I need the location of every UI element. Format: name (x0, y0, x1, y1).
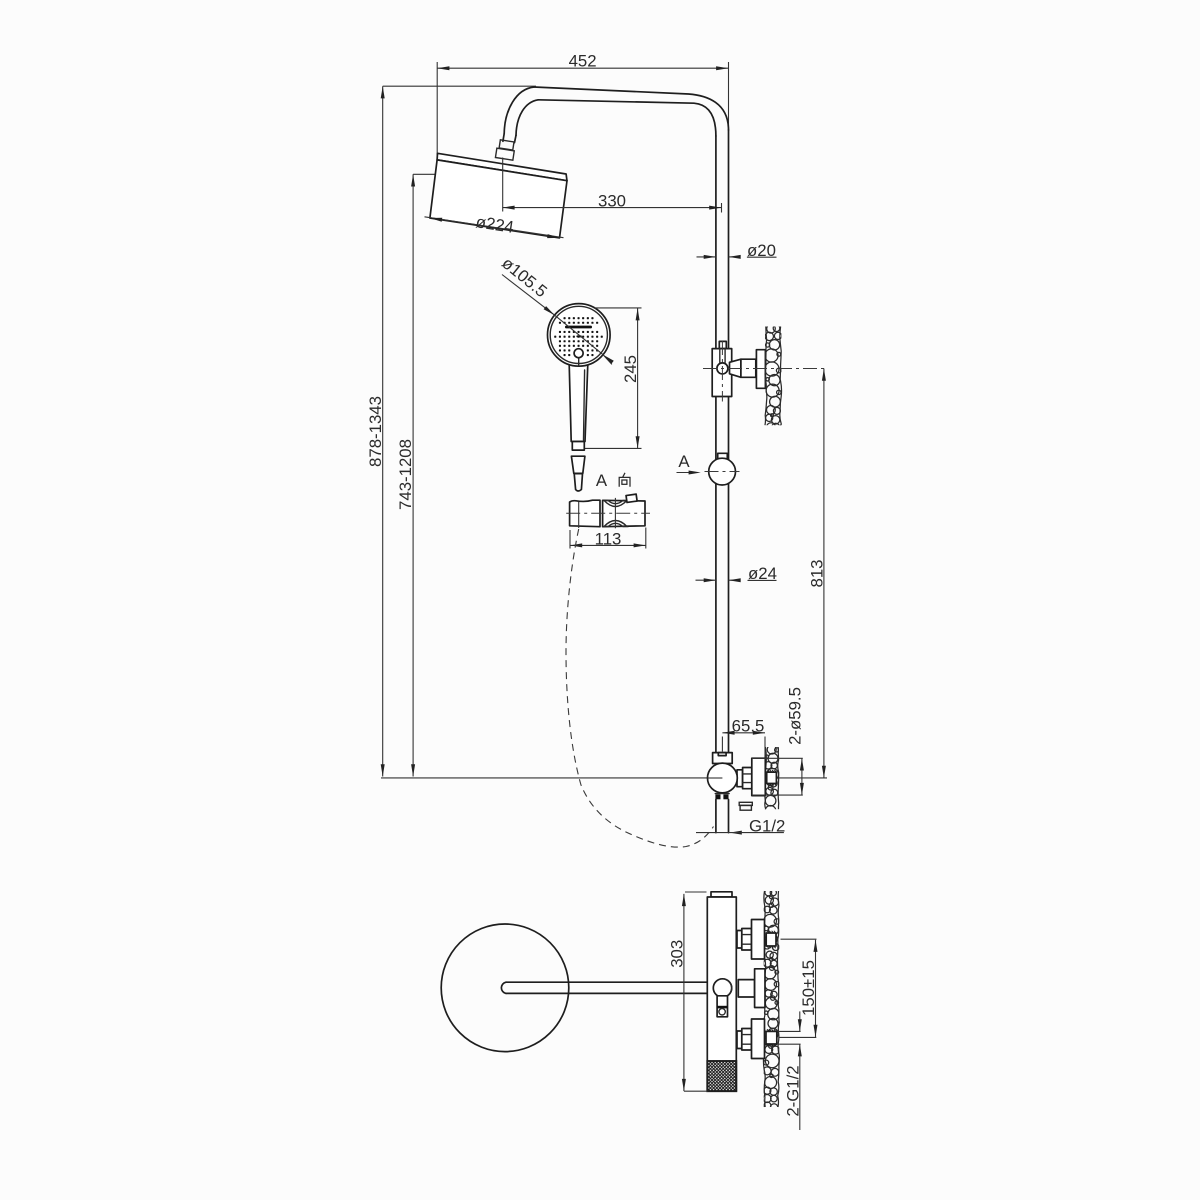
svg-text:743-1208: 743-1208 (396, 439, 415, 510)
svg-text:303: 303 (668, 940, 687, 968)
svg-text:65.5: 65.5 (732, 717, 765, 736)
svg-text:813: 813 (808, 560, 827, 588)
svg-text:A: A (678, 452, 690, 471)
svg-text:452: 452 (569, 51, 597, 70)
svg-text:113: 113 (595, 529, 622, 548)
svg-text:878-1343: 878-1343 (366, 396, 385, 467)
svg-text:ø20: ø20 (747, 241, 776, 260)
svg-text:330: 330 (598, 191, 626, 210)
svg-text:G1/2: G1/2 (749, 817, 785, 836)
svg-text:ø24: ø24 (748, 564, 777, 583)
svg-text:2-G1/2: 2-G1/2 (784, 1065, 803, 1116)
svg-text:245: 245 (621, 355, 640, 383)
svg-text:2-ø59.5: 2-ø59.5 (785, 687, 804, 745)
svg-text:150±15: 150±15 (799, 960, 818, 1016)
svg-text:A: A (596, 471, 608, 490)
